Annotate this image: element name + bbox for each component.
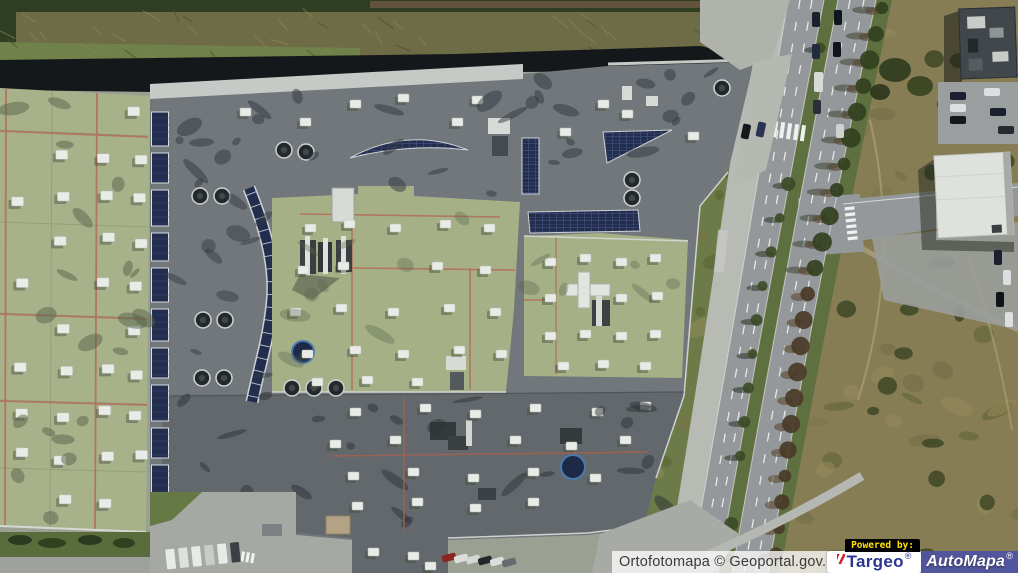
targeo-logo[interactable]: Targeo ® bbox=[827, 551, 921, 573]
map-viewport[interactable]: Ortofotomapa © Geoportal.gov.pl Powered … bbox=[0, 0, 1018, 573]
attribution-text: Ortofotomapa © Geoportal.gov.pl bbox=[619, 554, 838, 570]
powered-by-label: Powered by: bbox=[845, 539, 920, 552]
dirt-track bbox=[370, 1, 710, 8]
orthophoto-map bbox=[0, 0, 1018, 573]
registered-trademark-symbol: ® bbox=[905, 552, 912, 561]
building-complex bbox=[0, 60, 754, 573]
round-solar-skylight bbox=[561, 455, 585, 479]
canopy bbox=[326, 516, 350, 534]
solar-panel-array bbox=[528, 210, 640, 233]
targeo-wordmark: Targeo bbox=[847, 552, 904, 572]
dark-building bbox=[959, 7, 1017, 79]
automapa-wordmark: AutoMapa bbox=[926, 553, 1005, 571]
registered-trademark-symbol: ® bbox=[1006, 552, 1013, 561]
green-roof-west bbox=[0, 88, 150, 532]
targeo-mark-icon bbox=[837, 554, 845, 564]
automapa-logo[interactable]: AutoMapa ® bbox=[921, 551, 1018, 573]
solar-panel-array bbox=[522, 138, 539, 194]
white-building bbox=[934, 152, 1014, 238]
